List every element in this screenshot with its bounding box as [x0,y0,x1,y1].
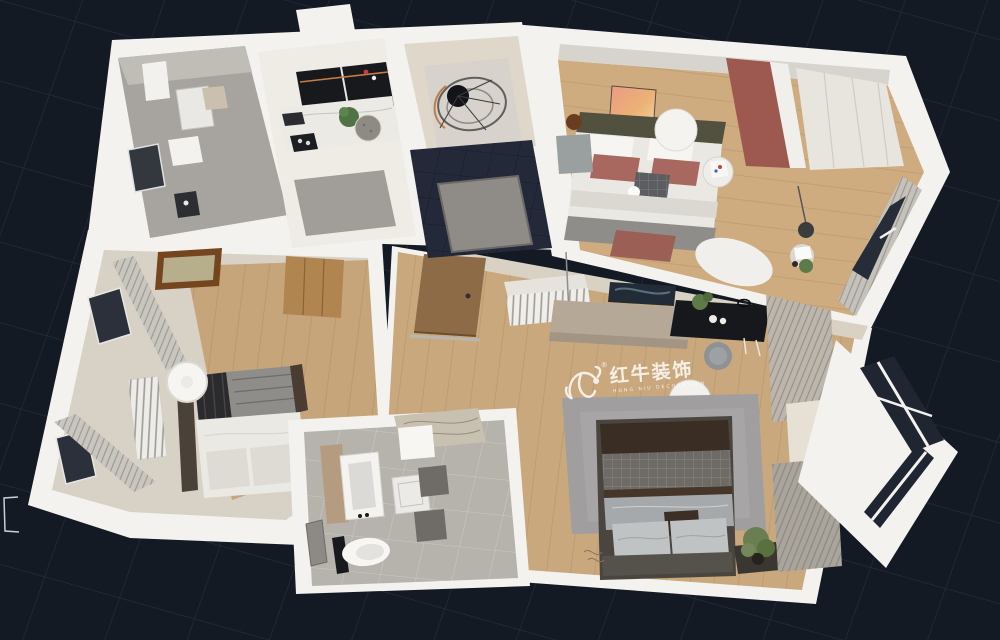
entry-door [414,254,486,336]
floorplan-canvas[interactable]: ® 红牛装饰 HONG NIU DECORATION [0,0,1000,640]
registered-mark: ® [600,361,608,370]
cooktop [290,133,318,152]
art-print [710,160,728,178]
bed-headboard [600,420,730,456]
storage-box [398,425,435,460]
table-lamp [566,114,582,130]
bed-pillow [206,448,250,490]
tv [608,282,676,306]
double-bed [596,416,736,580]
bed-pillow [670,518,729,558]
kitchen-mat [294,170,396,236]
floor-mat [414,509,447,542]
doormat [438,176,532,252]
round-pillow [655,109,697,151]
floor-mat [418,465,449,497]
floorplan-viewport[interactable]: ® 红牛装饰 HONG NIU DECORATION [0,0,1000,640]
faucet [358,514,362,518]
bathroom-mirror [128,144,165,192]
bed-pillow [590,154,640,182]
potted-plant [799,259,813,273]
bed-pillow [250,444,294,486]
kitchen-sink [282,112,305,126]
floor-lamp [798,222,814,238]
round-tray [355,115,381,141]
door-handle [466,294,471,299]
nightstand [556,134,593,174]
wardrobe [283,256,344,318]
bathroom-vanity [168,136,203,166]
room-bathroom-lower [288,408,530,594]
fridge-cabinet [142,61,170,101]
